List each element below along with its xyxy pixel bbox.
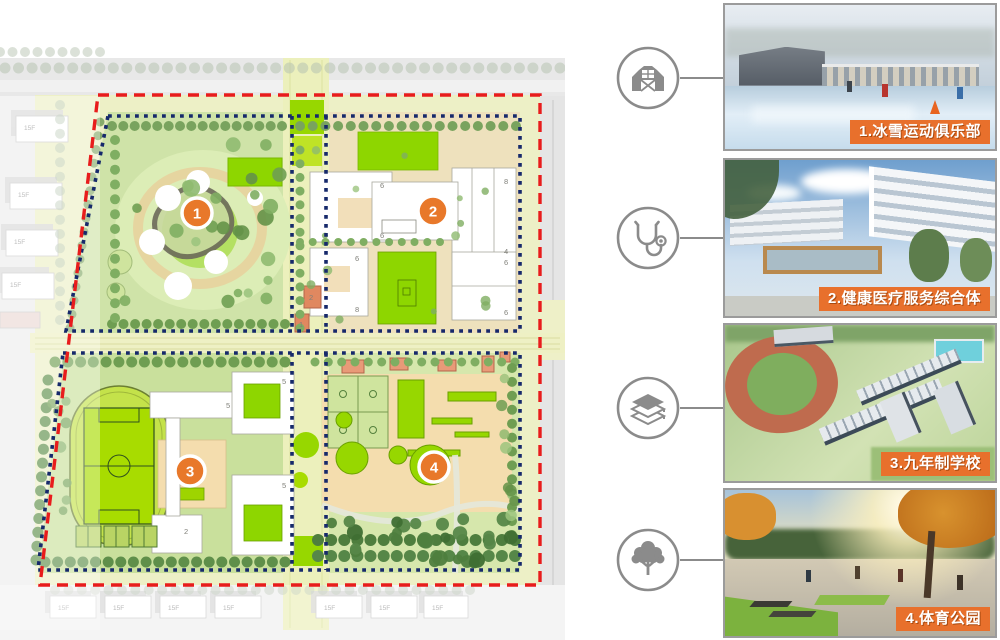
barn-icon [616,46,680,110]
autumn-tree [723,493,776,540]
svg-text:2: 2 [309,293,313,302]
svg-text:4: 4 [504,247,508,256]
connector-line-1 [680,77,723,79]
central-road [30,333,565,353]
svg-text:6: 6 [504,258,508,267]
svg-text:6: 6 [380,181,384,190]
svg-text:6: 6 [380,231,384,240]
photo-3-label: 3.九年制学校 [881,452,990,476]
connector-line-4 [680,559,723,561]
marker-1: 1 [182,198,212,228]
svg-text:2: 2 [184,527,188,536]
skater [882,84,888,97]
svg-text:5: 5 [282,377,286,386]
pedestrian [806,570,811,582]
svg-text:3: 3 [186,464,194,481]
tree [960,238,992,282]
photo-medical-complex: 2.健康医疗服务综合体 [723,158,997,318]
svg-text:2: 2 [429,204,437,221]
svg-text:5: 5 [226,401,230,410]
photo-ice-snow-club: 1.冰雪运动俱乐部 [723,3,997,151]
svg-text:6: 6 [355,254,359,263]
lawn [814,595,890,605]
skater [957,87,963,99]
photo-school-aerial: 3.九年制学校 [723,323,997,483]
connector-line-2 [680,237,723,239]
books-icon [616,376,680,440]
stethoscope-icon [616,206,680,270]
photo-2-label: 2.健康医疗服务综合体 [819,287,990,311]
skater [847,81,852,92]
svg-text:4: 4 [430,460,439,477]
photo-1-label: 1.冰雪运动俱乐部 [850,120,990,144]
pedestrian [855,566,860,579]
svg-text:8: 8 [504,177,508,186]
marker-3: 3 [175,456,205,486]
tree-icon [616,528,680,592]
svg-text:8: 8 [355,305,359,314]
marker-4: 4 [419,452,449,482]
pedestrian [898,569,903,582]
svg-text:1: 1 [193,206,201,223]
photo-2-podium [763,246,882,274]
site-plan: 15F 15F 15F 15F 15F 15F 15F 15F 15F 15F … [0,0,565,640]
svg-text:6: 6 [504,308,508,317]
connector-line-3 [680,407,723,409]
tree [909,229,950,282]
pedestrian [957,575,963,590]
svg-text:1: 1 [299,320,303,329]
marker-2: 2 [418,196,448,226]
masterplan-board: 15F 15F 15F 15F 15F 15F 15F 15F 15F 15F … [0,0,1000,640]
traffic-cone [930,100,940,114]
photo-sports-park: 4.体育公园 [723,488,997,638]
svg-text:5: 5 [282,481,286,490]
photo-4-label: 4.体育公园 [896,607,990,631]
